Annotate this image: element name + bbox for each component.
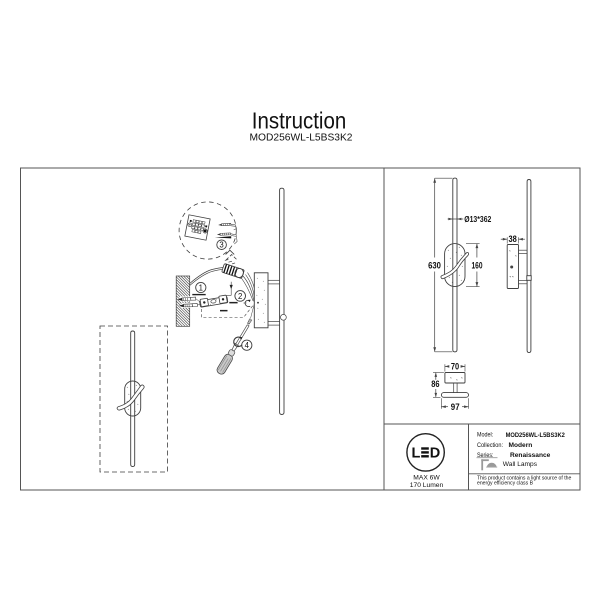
svg-text:Instruction: Instruction bbox=[252, 108, 347, 134]
svg-text:Model:: Model: bbox=[477, 432, 493, 439]
svg-text:MOD256WL-L5BS3K2: MOD256WL-L5BS3K2 bbox=[506, 432, 566, 439]
svg-text:D: D bbox=[430, 446, 440, 462]
svg-text:170 Lumen: 170 Lumen bbox=[410, 482, 444, 489]
svg-text:4: 4 bbox=[245, 341, 250, 350]
svg-text:630: 630 bbox=[428, 260, 441, 270]
svg-text:energy efficiency class B: energy efficiency class B bbox=[477, 481, 534, 487]
svg-text:Renaissance: Renaissance bbox=[510, 452, 551, 459]
svg-text:L: L bbox=[412, 446, 421, 462]
svg-text:Collection:: Collection: bbox=[477, 442, 503, 449]
svg-text:70: 70 bbox=[451, 361, 459, 371]
svg-text:Ø13*362: Ø13*362 bbox=[464, 215, 492, 224]
svg-text:MOD256WL-L5BS3K2: MOD256WL-L5BS3K2 bbox=[250, 132, 353, 144]
svg-text:MAX 6W: MAX 6W bbox=[413, 474, 440, 481]
svg-text:97: 97 bbox=[451, 402, 460, 412]
svg-text:Wall Lamps: Wall Lamps bbox=[503, 461, 538, 468]
svg-text:86: 86 bbox=[431, 379, 439, 389]
svg-text:Modern: Modern bbox=[509, 442, 533, 449]
svg-text:1: 1 bbox=[199, 284, 203, 293]
svg-text:2: 2 bbox=[238, 292, 242, 301]
svg-text:3: 3 bbox=[219, 241, 223, 250]
svg-text:160: 160 bbox=[472, 260, 483, 270]
svg-text:38: 38 bbox=[508, 234, 516, 244]
